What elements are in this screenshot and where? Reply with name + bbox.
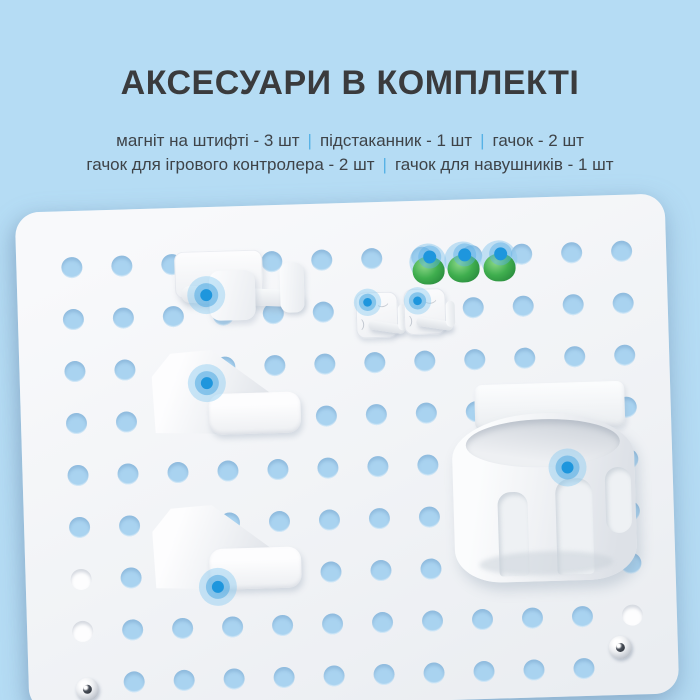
pin-magnet-1 (411, 254, 446, 285)
pegboard-hole (118, 515, 140, 537)
pegboard-hole (417, 454, 439, 476)
accessory-item: підстаканник - 1 шт (320, 131, 472, 150)
pegboard-hole (521, 607, 543, 629)
pegboard-hole (221, 616, 243, 638)
controller-hook-2 (152, 502, 305, 594)
accessory-item: гачок для навушників - 1 шт (395, 155, 614, 174)
pegboard-hole (560, 241, 582, 263)
pegboard-hole (68, 516, 90, 538)
pegboard-hole (314, 353, 336, 375)
pegboard-hole (413, 350, 435, 372)
pegboard-hole (512, 295, 534, 317)
mounting-screw-icon (76, 677, 100, 700)
pegboard-hole (571, 605, 593, 627)
pegboard-hole (64, 360, 86, 382)
controller-hook-1 (151, 347, 304, 439)
pegboard-hole (367, 455, 389, 477)
pegboard-hole (271, 614, 293, 636)
pegboard-hole (562, 293, 584, 315)
pegboard-hole-empty (70, 568, 92, 590)
pegboard-hole (321, 613, 343, 635)
pegboard-hole (563, 345, 585, 367)
pegboard-hole (312, 301, 334, 323)
pegboard-hole (318, 509, 340, 531)
headphone-hook-tip (279, 262, 304, 313)
pegboard-hole (173, 669, 195, 691)
pegboard-hole (368, 507, 390, 529)
pegboard-hole (61, 256, 83, 278)
pegboard-hole (371, 611, 393, 633)
pegboard-hole (111, 255, 133, 277)
pegboard-hole (67, 464, 89, 486)
pegboard-hole (463, 348, 485, 370)
controller-hook-lip (208, 391, 301, 435)
pegboard-hole (273, 666, 295, 688)
pegboard-hole (473, 660, 495, 682)
pegboard-hole (223, 668, 245, 690)
hook-detail-mark: ) (361, 318, 365, 330)
pegboard-hole (373, 663, 395, 685)
pegboard-hole (612, 292, 634, 314)
pegboard-hole (62, 308, 84, 330)
pin-magnet-3 (482, 251, 517, 282)
pin-magnet-2 (446, 252, 481, 283)
separator: | (300, 131, 320, 150)
accessory-item: магніт на штифті - 3 шт (116, 131, 299, 150)
separator: | (375, 155, 395, 174)
cup-holder (450, 380, 646, 604)
pegboard-hole (112, 307, 134, 329)
page-title: АКСЕСУАРИ В КОМПЛЕКТІ (0, 64, 700, 103)
pegboard-hole (317, 457, 339, 479)
small-hook-2: ) ) (403, 288, 446, 335)
pegboard-holes (15, 193, 665, 212)
accessory-list-line2: гачок для ігрового контролера - 2 шт|гач… (0, 154, 700, 176)
pegboard-hole (420, 558, 442, 580)
pegboard-hole (123, 671, 145, 693)
pegboard-hole (121, 619, 143, 641)
mounting-screw-icon (609, 636, 633, 660)
headphone-hook (158, 242, 308, 326)
separator: | (472, 131, 492, 150)
pegboard-hole (167, 461, 189, 483)
pegboard-hole (320, 561, 342, 583)
pegboard-hole (120, 567, 142, 589)
pegboard-hole-empty (621, 604, 643, 626)
pegboard-hole (310, 249, 332, 271)
pegboard-hole (65, 412, 87, 434)
pegboard-hole (613, 344, 635, 366)
pegboard-hole (523, 659, 545, 681)
pegboard-hole (573, 657, 595, 679)
pegboard-hole (315, 405, 337, 427)
pegboard-hole (418, 506, 440, 528)
pegboard-hole (360, 247, 382, 269)
pegboard-hole (610, 240, 632, 262)
pegboard-hole (364, 351, 386, 373)
accessory-item: гачок - 2 шт (493, 131, 584, 150)
pegboard-hole (117, 463, 139, 485)
pegboard-hole (370, 559, 392, 581)
pegboard-hole-empty (71, 620, 93, 642)
pegboard-hole (513, 347, 535, 369)
pegboard-hole (471, 608, 493, 630)
pegboard-hole (323, 665, 345, 687)
pegboard-hole (217, 460, 239, 482)
hotspot-marker-icon (198, 567, 237, 606)
pegboard-hole (114, 359, 136, 381)
cup-holder-slot (605, 467, 633, 534)
pegboard-hole (462, 296, 484, 318)
small-hook-1: ) ) (355, 291, 398, 338)
accessory-list-line1: магніт на штифті - 3 шт|підстаканник - 1… (0, 130, 700, 152)
pegboard-hole (365, 403, 387, 425)
pegboard-hole (115, 411, 137, 433)
hook-detail-mark: ) (409, 315, 413, 327)
pegboard-hole (415, 402, 437, 424)
small-hook-tip (446, 301, 456, 327)
product-image: АКСЕСУАРИ В КОМПЛЕКТІ магніт на штифті -… (0, 0, 700, 700)
pegboard: ) ) ) ) (15, 193, 680, 700)
accessory-item: гачок для ігрового контролера - 2 шт (86, 155, 374, 174)
pegboard-hole (171, 617, 193, 639)
pegboard-hole (423, 662, 445, 684)
pegboard-hole (421, 610, 443, 632)
pegboard-hole (267, 458, 289, 480)
